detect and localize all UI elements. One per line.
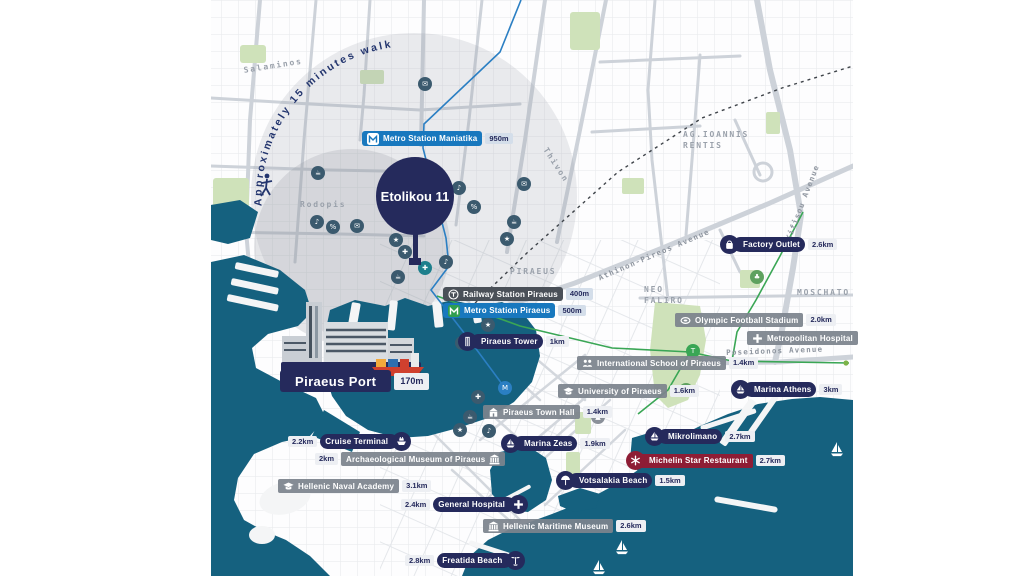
map-poi-icon: ★ [500,232,514,246]
map-poi-icon: ☕ [507,215,521,229]
poi-badge-hellenic-naval-academy: Hellenic Naval Academy3.1km [278,479,434,493]
poi-badge-hellenic-maritime-museum: Hellenic Maritime Museum2.6km [483,519,649,533]
poi-label: Piraeus Port [295,374,376,389]
museum-icon [488,521,499,532]
property-pin-label: Etolikou 11 [381,189,450,204]
poi-label: Mikrolimano [668,432,717,441]
distance-tag: 1.5km [655,475,684,487]
distance-tag: 2.6km [808,239,837,251]
poi-label: Freatida Beach [442,556,502,565]
poi-label: Metropolitan Hospital [767,334,853,343]
piraeus-area-map: Approximately 15 minutes walk [0,0,1024,576]
umbrella-icon [556,471,575,490]
poi-label: Marina Zeas [524,439,572,448]
poi-badge-factory-outlet: Factory Outlet2.6km [720,235,840,254]
poi-label: Piraeus Town Hall [503,408,575,417]
building-icon [458,332,477,351]
distance-tag: 2.2km [288,436,317,448]
poi-badge-piraeus-tower: Piraeus Tower1km [458,332,572,351]
star-icon [626,451,645,470]
area-label-neo-faliro: NEO FALIRO [644,285,684,307]
cap-icon [283,481,294,492]
map-poi-icon: ★ [481,318,495,332]
sailboat-icon [615,540,629,561]
poi-label: Marina Athens [754,385,811,394]
poi-badge-metropolitan-hospital: Metropolitan Hospital [747,331,858,345]
distance-tag: 2km [315,453,338,465]
map-poi-icon: ☕ [463,410,477,424]
map-poi-icon: ★ [453,423,467,437]
map-poi-icon: ✉ [350,219,364,233]
area-label-rodopis: Rodopis [300,200,346,211]
poi-badge-piraeus-town-hall: Piraeus Town Hall1.4km [483,405,615,419]
distance-tag: 3.1km [402,480,431,492]
rail-icon [448,289,459,300]
poi-label: Votsalakia Beach [579,476,647,485]
map-poi-icon: ♪ [310,215,324,229]
sail-icon [731,380,750,399]
distance-tag: 1.9km [580,438,609,450]
map-poi-icon: ♪ [452,181,466,195]
distance-tag: 2.6km [616,520,645,532]
poi-label: Cruise Terminal [325,437,388,446]
area-label-moschato: MOSCHATO [797,288,850,299]
map-poi-icon: % [467,200,481,214]
area-label-piraeus: PIRAEUS [510,267,556,278]
bag-icon [720,235,739,254]
palm-icon [506,551,525,570]
map-poi-icon: ♪ [482,424,496,438]
poi-label: Archaeological Museum of Piraeus [346,455,485,464]
map-poi-icon: ✚ [471,390,485,404]
poi-badge-piraeus-port: Piraeus Port170m [280,370,432,392]
poi-badge-cruise-terminal: 2.2kmCruise Terminal [285,432,411,451]
map-poi-icon: ✉ [418,77,432,91]
metro-green-icon [448,305,460,317]
ship-icon [392,432,411,451]
map-poi-icon: ✚ [398,245,412,259]
distance-tag: 1.4km [583,406,612,418]
stadium-icon [680,315,691,326]
distance-tag: 170m [394,373,429,390]
school-icon [582,358,593,369]
distance-tag: 950m [485,133,512,145]
poi-badge-archaeological-museum-of-piraeus: 2kmArchaeological Museum of Piraeus [312,452,505,466]
poi-label: Metro Station Maniatika [383,134,477,143]
museum-icon [489,454,500,465]
poi-badge-university-of-piraeus: University of Piraeus1.6km [558,384,702,398]
poi-label: Michelin Star Restaurant [649,456,748,465]
property-pin-etolikou-11: Etolikou 11 [376,157,454,235]
map-poi-icon: ☕ [391,270,405,284]
poi-label: Piraeus Tower [481,337,538,346]
distance-tag: 400m [566,288,593,300]
poi-badge-freatida-beach: 2.8kmFreatida Beach [402,551,525,570]
map-poi-icon: ✉ [517,177,531,191]
distance-tag: 2.0km [806,314,835,326]
poi-label: University of Piraeus [578,387,662,396]
poi-label: International School of Piraeus [597,359,721,368]
poi-badge-mikrolimano: Mikrolimano2.7km [645,427,758,446]
poi-label: Factory Outlet [743,240,800,249]
poi-label: Railway Station Piraeus [463,290,558,299]
poi-badge-metro-station-maniatika: Metro Station Maniatika950m [362,131,516,146]
cap-icon [563,386,574,397]
poi-badge-international-school-of-piraeus: International School of Piraeus1.4km [577,356,761,370]
sail-icon [645,427,664,446]
poi-label: Metro Station Piraeus [464,306,550,315]
poi-badge-marina-zeas: Marina Zeas1.9km [501,434,613,453]
poi-label: Hellenic Maritime Museum [503,522,608,531]
distance-tag: 1.6km [670,385,699,397]
map-poi-icon: % [326,220,340,234]
sailboat-icon [592,560,606,576]
poi-label: Olympic Football Stadium [695,316,798,325]
distance-tag: 2.7km [725,431,754,443]
distance-tag: 2.8km [405,555,434,567]
map-poi-icon: ♣ [750,270,764,284]
distance-tag: 1km [546,336,569,348]
poi-label: Hellenic Naval Academy [298,482,394,491]
poi-badge-railway-station-piraeus: Railway Station Piraeus400m [443,287,596,301]
poi-badge-general-hospital: 2.4kmGeneral Hospital [398,495,528,514]
townhall-icon [488,407,499,418]
poi-badge-michelin-star-restaurant: Michelin Star Restaurant2.7km [626,451,788,470]
metro-white-icon [367,133,379,145]
plus-gray-icon [752,333,763,344]
distance-tag: 500m [558,305,585,317]
plus-icon [509,495,528,514]
area-label-ag-ioannis-rentis: AG.IOANNIS RENTIS [683,130,749,152]
poi-label: General Hospital [438,500,505,509]
poi-badge-marina-athens: Marina Athens3km [731,380,845,399]
poi-badge-votsalakia-beach: Votsalakia Beach1.5km [556,471,688,490]
distance-tag: 2.4km [401,499,430,511]
sail-icon [501,434,520,453]
map-poi-icon: M [498,381,512,395]
distance-tag: 2.7km [756,455,785,467]
sailboat-icon [830,442,844,463]
map-poi-icon: ♪ [439,255,453,269]
distance-tag: 1.4km [729,357,758,369]
poi-badge-metro-station-piraeus: Metro Station Piraeus500m [443,303,589,318]
distance-tag: 3km [819,384,842,396]
poi-badge-olympic-football-stadium: Olympic Football Stadium2.0km [675,313,839,327]
map-poi-icon: ☕ [311,166,325,180]
